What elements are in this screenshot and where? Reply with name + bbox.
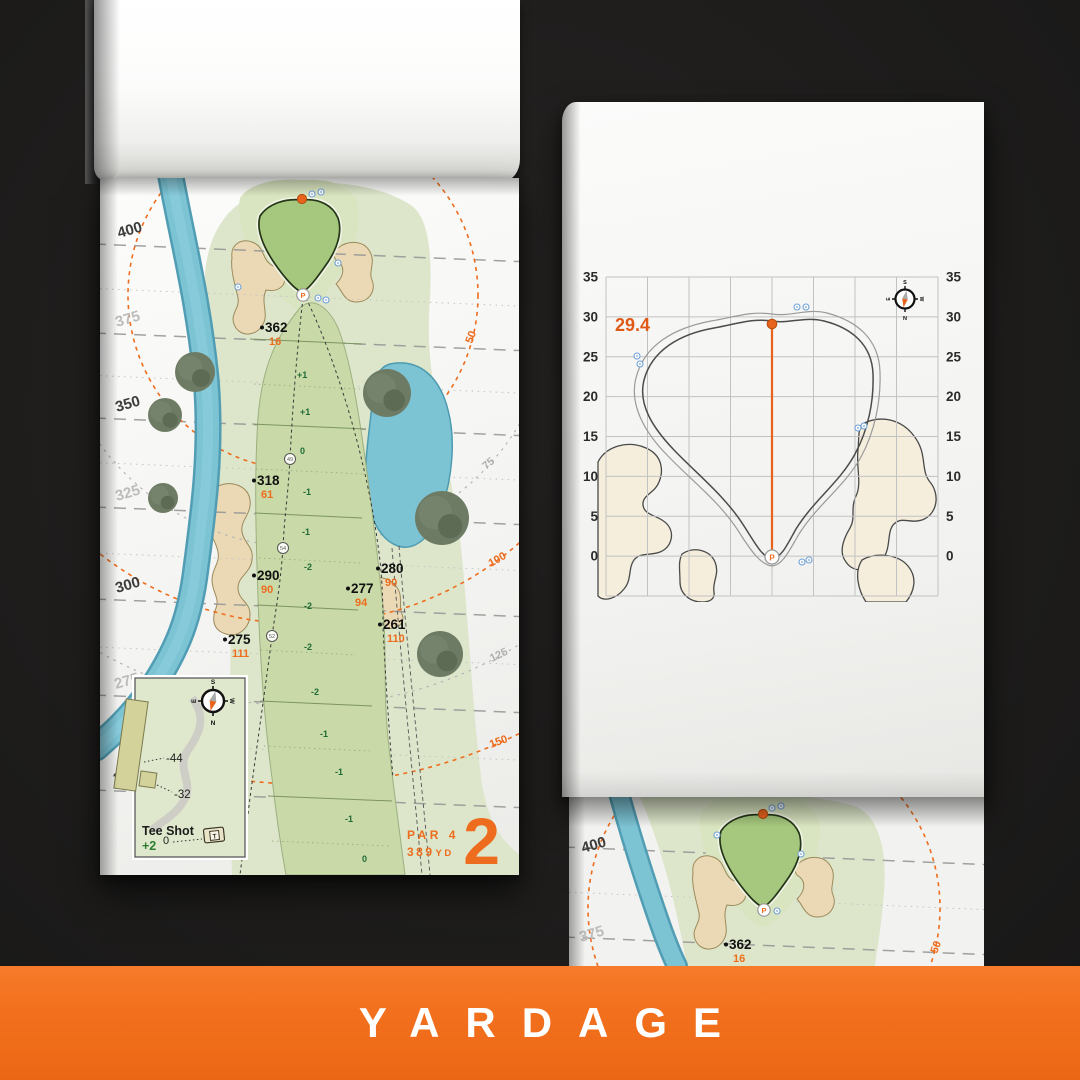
svg-text:P: P (761, 906, 766, 915)
marker-dot (252, 574, 256, 578)
svg-text:+2: +2 (142, 839, 156, 853)
hole-map: P 400375350325300275250 495452 +1+10-1-1… (100, 178, 519, 875)
sprinkler-dot (325, 299, 327, 301)
sprinkler-dot (808, 559, 810, 561)
elevation-value: -1 (303, 487, 311, 497)
axis-label-right: 10 (946, 469, 961, 484)
sprinkler-dot (796, 306, 798, 308)
arc-distance-label: 100 (487, 550, 509, 570)
svg-text:W: W (228, 698, 234, 704)
elevation-value: -2 (304, 642, 312, 652)
green-depth-value: 29.4 (615, 315, 650, 335)
marker-distance: 362 (729, 937, 752, 952)
marker-carry: 90 (385, 577, 397, 589)
marker-distance: 362 (265, 320, 288, 335)
axis-label-right: 0 (946, 549, 954, 564)
sprinkler-dot (801, 561, 803, 563)
svg-text:W: W (918, 297, 924, 302)
marker-dot (260, 326, 264, 330)
aim-dot (297, 194, 306, 203)
green-bunkers (598, 419, 936, 602)
yardage-label: 389YD (407, 845, 454, 859)
compass-icon: S N W E (886, 280, 924, 322)
marker-distance: 261 (383, 617, 406, 632)
sprinkler-dot (317, 297, 319, 299)
arc-distance-label: 75 (480, 455, 497, 472)
svg-text:P: P (769, 554, 775, 563)
tree-shadow (437, 651, 458, 672)
marker-carry: 94 (355, 597, 368, 609)
river (100, 178, 208, 748)
marker-dot (223, 638, 227, 642)
marker-dot (252, 479, 256, 483)
marker-carry: 16 (733, 953, 745, 965)
marker-distance: 290 (257, 568, 280, 583)
axis-label-left: 25 (583, 349, 599, 364)
elevation-value: -1 (320, 729, 328, 739)
ruler-labels: 400375 (577, 834, 608, 946)
svg-text:T: T (212, 833, 217, 840)
green-detail-chart: 3535303025252020151510105500 P 29.4 (562, 102, 984, 797)
svg-text:S: S (211, 679, 216, 686)
axis-label-left: 35 (583, 270, 599, 285)
sprinkler-dot (780, 805, 782, 807)
elevation-value: -1 (345, 814, 353, 824)
waypoint-number: 54 (280, 546, 286, 552)
banner-title: YARDAGE (333, 999, 747, 1047)
flipped-page-curl (94, 0, 520, 181)
marker-dot (346, 587, 350, 591)
marker-carry: 110 (387, 633, 405, 645)
hole-map-page: P 400375350325300275250 495452 +1+10-1-1… (100, 178, 519, 875)
marker-carry: 111 (232, 648, 249, 660)
sprinkler-dot (337, 262, 339, 264)
svg-text:-44: -44 (166, 753, 183, 765)
axis-label-left: 20 (583, 389, 598, 404)
page-spine-shadow (94, 0, 120, 181)
scene: P 400375350325300275250 495452 +1+10-1-1… (0, 0, 1080, 1080)
axis-label-right: 20 (946, 389, 961, 404)
axis-label-left: 0 (590, 549, 598, 564)
marker-dot (376, 567, 380, 571)
marker-dot (378, 623, 382, 627)
svg-text:P: P (300, 291, 305, 300)
elevation-value: -1 (335, 767, 343, 777)
sprinkler-dot (716, 834, 718, 836)
axis-label-right: 35 (946, 270, 962, 285)
axis-label-left: 30 (583, 309, 598, 324)
ruler-label: 375 (113, 308, 142, 331)
sprinkler-dot (237, 286, 239, 288)
tree-shadow (192, 369, 210, 387)
ruler-label: 325 (113, 482, 142, 505)
axis-label-right: 5 (946, 509, 954, 524)
next-hole-page: P 400375 36216 50 (569, 797, 984, 966)
elevation-value: +1 (297, 370, 307, 380)
ruler-label: 300 (113, 574, 142, 597)
svg-text:S: S (903, 280, 907, 286)
svg-text:N: N (211, 720, 216, 727)
arc-label: 50 (929, 939, 944, 955)
waypoint-number: 52 (269, 634, 275, 640)
depth-dot (767, 319, 777, 329)
sprinkler-dot (800, 853, 802, 855)
axis-label-left: 5 (590, 509, 598, 524)
tree-shadow (162, 412, 177, 427)
svg-text:E: E (192, 699, 198, 703)
elevation-value: -2 (304, 562, 312, 572)
next-hole-map: P 400375 36216 50 (569, 797, 984, 966)
sprinkler-dot (771, 807, 773, 809)
elevation-value: -2 (311, 687, 319, 697)
green-detail-page: 3535303025252020151510105500 P 29.4 (562, 102, 984, 797)
ruler-label: 375 (577, 923, 606, 946)
ruler-label: 400 (579, 834, 608, 857)
tee-shot-inset: T -44 -32 0 Tee Shot +2 S N (114, 675, 248, 860)
elevation-value: -1 (302, 527, 310, 537)
marker-dot (724, 943, 728, 947)
sprinkler-dot (311, 193, 313, 195)
pin-marker: P (765, 550, 779, 564)
green-outline-inner (643, 319, 874, 559)
sprinkler-dot (857, 427, 859, 429)
arc-distance-label: 50 (929, 939, 944, 955)
axis-label-left: 15 (583, 429, 599, 444)
axis-label-left: 10 (583, 469, 598, 484)
svg-text:Tee Shot: Tee Shot (142, 824, 195, 838)
hole-number: 2 (463, 804, 500, 875)
sprinkler-dot (805, 306, 807, 308)
marker-distance: 277 (351, 581, 374, 596)
sprinkler-dot (863, 425, 865, 427)
tee-marker-icon: T (203, 827, 224, 843)
marker-distance: 280 (381, 561, 404, 576)
arc-distance-label: 50 (464, 329, 479, 345)
axis-label-right: 15 (946, 429, 962, 444)
green-outline-outer (634, 311, 880, 566)
marker-carry: 90 (261, 584, 273, 596)
waypoint-number: 49 (287, 457, 293, 463)
svg-text:-32: -32 (174, 789, 191, 801)
axis-label-right: 25 (946, 349, 962, 364)
elevation-value: 0 (362, 854, 367, 864)
arc-distance-label: 125 (488, 646, 510, 665)
svg-text:N: N (903, 316, 907, 322)
sprinkler-dot (636, 355, 638, 357)
pin-marker: P (297, 289, 309, 301)
elevation-value: -2 (304, 601, 312, 611)
sprinkler-dot (776, 910, 778, 912)
tree-shadow (383, 389, 405, 411)
elevation-value: +1 (300, 407, 310, 417)
tree-shadow (161, 496, 175, 510)
sprinkler-dot (639, 363, 641, 365)
marker-carry: 16 (269, 336, 281, 348)
elevation-value: 0 (300, 446, 305, 456)
par-label: PAR 4 (407, 828, 459, 842)
marker-carry: 61 (261, 489, 273, 501)
ruler-label: 400 (115, 219, 144, 242)
marker-distance: 318 (257, 473, 280, 488)
tree-shadow (438, 514, 462, 538)
sprinkler-dot (320, 191, 322, 193)
ruler-label: 350 (113, 393, 142, 416)
yardage-banner: YARDAGE (0, 966, 1080, 1080)
arc-distance-label: 150 (488, 733, 509, 751)
marker-distance: 275 (228, 632, 251, 647)
svg-text:E: E (886, 297, 892, 301)
axis-label-right: 30 (946, 309, 961, 324)
